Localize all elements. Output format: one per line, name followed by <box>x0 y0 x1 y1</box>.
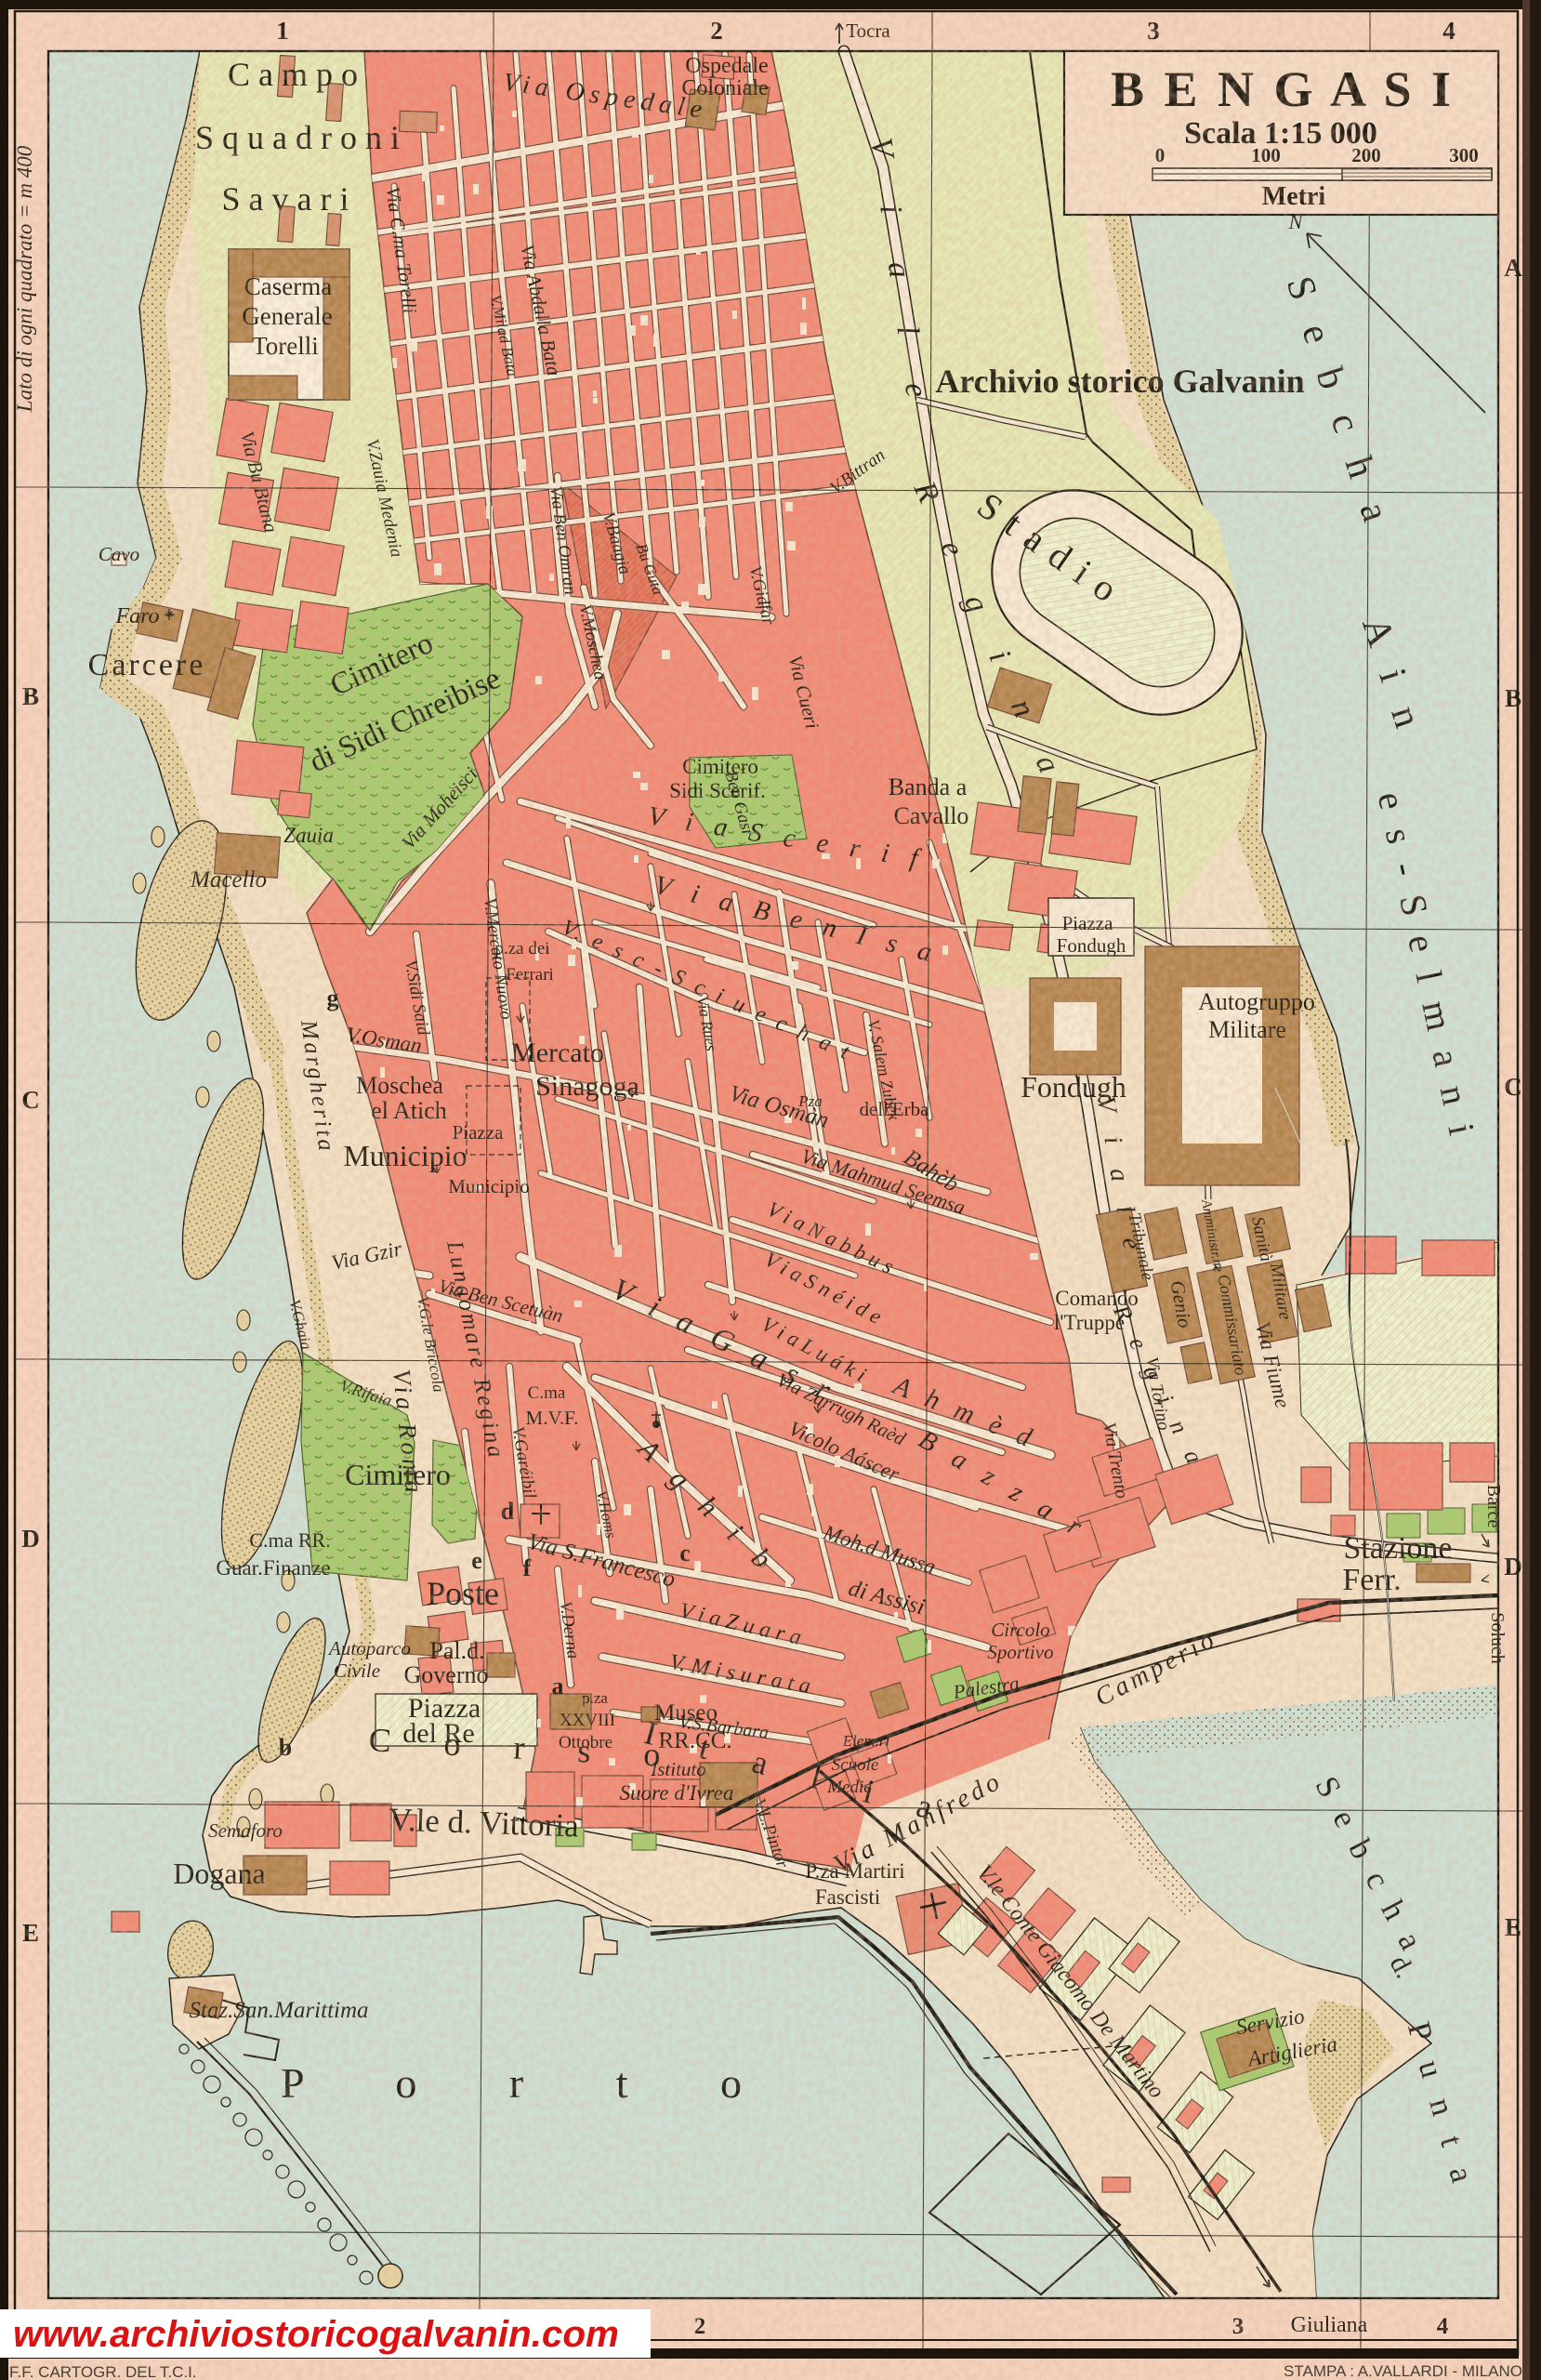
svg-text:F.F. CARTOGR. DEL T.C.I.: F.F. CARTOGR. DEL T.C.I. <box>9 2363 197 2380</box>
svg-text:STAMPA : A.VALLARDI - MILANO: STAMPA : A.VALLARDI - MILANO <box>1284 2362 1522 2380</box>
svg-text:www.archiviostoricogalvanin.co: www.archiviostoricogalvanin.com <box>13 2314 619 2355</box>
